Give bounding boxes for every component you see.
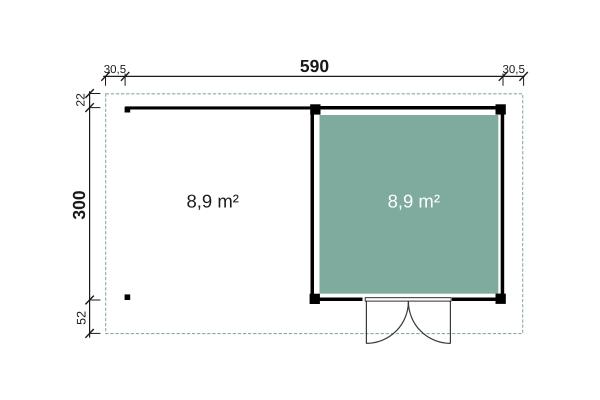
svg-text:8,9 m²: 8,9 m² xyxy=(388,190,440,211)
svg-text:30,5: 30,5 xyxy=(104,64,126,76)
svg-text:30,5: 30,5 xyxy=(503,64,525,76)
svg-text:590: 590 xyxy=(300,56,329,76)
svg-text:52: 52 xyxy=(75,311,89,325)
svg-text:8,9 m²: 8,9 m² xyxy=(186,190,238,211)
svg-text:22: 22 xyxy=(73,93,87,107)
svg-text:300: 300 xyxy=(69,190,89,219)
